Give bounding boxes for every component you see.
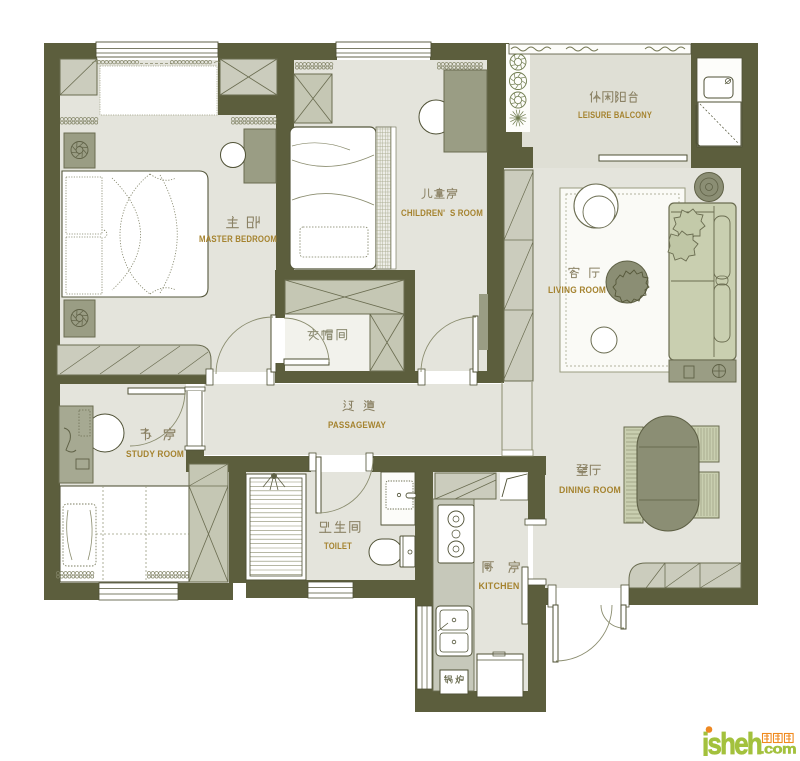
- svg-text:DINING ROOM: DINING ROOM: [559, 485, 621, 495]
- svg-text:LIVING ROOM: LIVING ROOM: [548, 285, 606, 295]
- svg-text:PASSAGEWAY: PASSAGEWAY: [328, 420, 386, 430]
- svg-text:TOILET: TOILET: [324, 541, 352, 551]
- svg-text:KITCHEN: KITCHEN: [479, 581, 520, 591]
- svg-text:STUDY ROOM: STUDY ROOM: [126, 449, 184, 459]
- svg-text:.com: .com: [760, 742, 797, 757]
- svg-text:CHILDREN' S ROOM: CHILDREN' S ROOM: [401, 208, 483, 218]
- svg-text:MASTER BEDROOM: MASTER BEDROOM: [199, 234, 277, 244]
- svg-text:LEISURE BALCONY: LEISURE BALCONY: [578, 110, 652, 120]
